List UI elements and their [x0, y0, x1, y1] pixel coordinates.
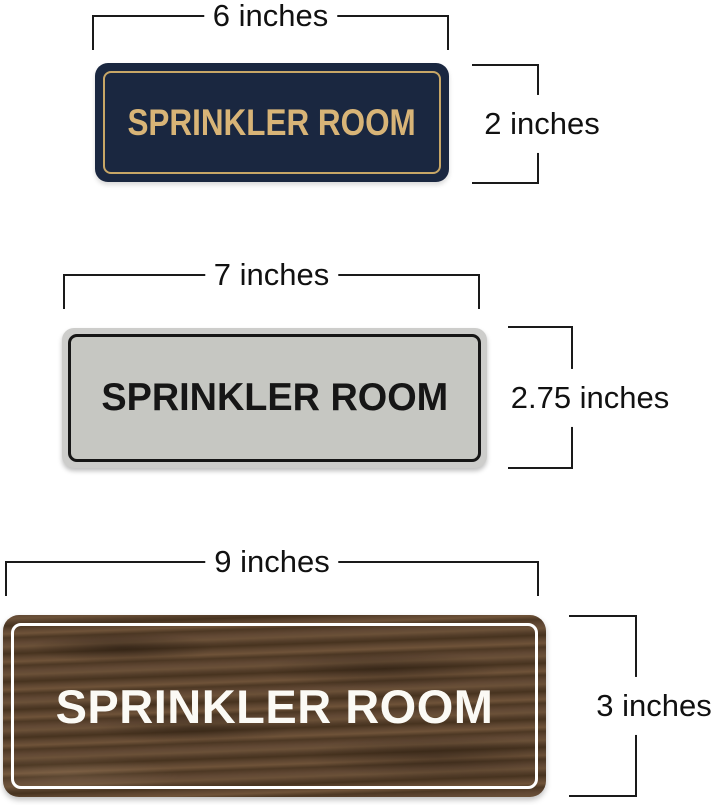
dimension-tick-top: [508, 326, 573, 328]
width-label-9in: 9 inches: [205, 545, 338, 579]
width-label-6in: 6 inches: [204, 0, 337, 33]
height-dimension-2in: 2 inches: [472, 64, 539, 184]
dimension-tick-right: [537, 561, 539, 596]
height-label-2in: 2 inches: [478, 95, 605, 153]
dimension-tick-left: [63, 274, 65, 309]
dimension-tick-top: [569, 615, 637, 617]
width-label-7in: 7 inches: [205, 258, 338, 292]
sign-navy-text: SPRINKLER ROOM: [128, 102, 416, 144]
dimension-tick-top: [472, 64, 539, 66]
sign-silver-text: SPRINKLER ROOM: [101, 376, 448, 420]
dimension-tick-left: [5, 561, 7, 596]
sign-size-diagram: 6 inches SPRINKLER ROOM 2 inches 7 inche…: [0, 0, 722, 805]
dimension-tick-right: [447, 15, 449, 50]
height-dimension-275in: 2.75 inches: [508, 326, 573, 469]
sign-silver-7x275: SPRINKLER ROOM: [62, 328, 487, 468]
height-label-3in: 3 inches: [590, 677, 717, 735]
dimension-tick-left: [92, 15, 94, 50]
dimension-tick-bottom: [472, 182, 539, 184]
sign-navy-6x2: SPRINKLER ROOM: [95, 63, 449, 182]
sign-wood-text: SPRINKLER ROOM: [56, 679, 494, 734]
dimension-tick-bottom: [569, 795, 637, 797]
sign-wood-9x3: SPRINKLER ROOM: [3, 615, 546, 797]
dimension-tick-right: [478, 274, 480, 309]
height-label-275in: 2.75 inches: [505, 368, 676, 426]
dimension-tick-bottom: [508, 467, 573, 469]
height-dimension-3in: 3 inches: [569, 615, 637, 797]
